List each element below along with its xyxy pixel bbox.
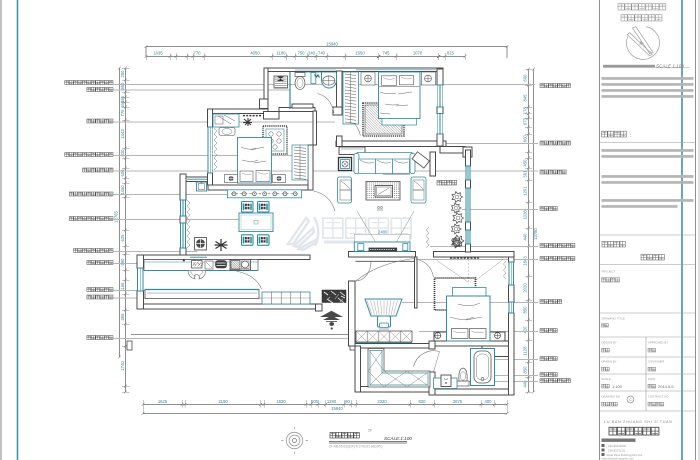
svg-text:2F-AB.05.03(S2F):4:1700.01-abc: 2F-AB.05.03(S2F):4:1700.01-abcdPQ <box>329 445 383 449</box>
svg-text:PROJECT: PROJECT <box>602 270 616 274</box>
svg-text:750: 750 <box>298 50 306 55</box>
svg-text:2014.6.6: 2014.6.6 <box>658 384 674 389</box>
svg-text:440: 440 <box>523 380 528 388</box>
svg-text:DRAWING TITLE: DRAWING TITLE <box>602 317 625 321</box>
svg-text:2480: 2480 <box>378 229 388 234</box>
svg-text:SCALE: SCALE <box>602 377 611 381</box>
svg-text:165: 165 <box>120 100 125 108</box>
svg-text:1100: 1100 <box>276 50 286 55</box>
svg-text:845: 845 <box>523 94 528 102</box>
svg-text:2F: 2F <box>368 429 372 433</box>
svg-text:2020: 2020 <box>523 283 528 293</box>
svg-text:1070: 1070 <box>413 50 423 55</box>
svg-text:2675: 2675 <box>453 399 463 404</box>
svg-text:13780: 13780 <box>533 228 538 240</box>
svg-text:105: 105 <box>311 399 319 404</box>
svg-text:820: 820 <box>419 399 427 404</box>
svg-text:850: 850 <box>523 306 528 314</box>
svg-text:SCALE:1:100: SCALE:1:100 <box>384 436 412 441</box>
svg-text:www.lubanzhuangshi.com: www.lubanzhuangshi.com <box>602 457 635 460</box>
svg-text:1:100: 1:100 <box>612 384 623 389</box>
svg-text:1843: 1843 <box>523 256 528 266</box>
svg-text:740: 740 <box>318 50 326 55</box>
svg-text:12765: 12765 <box>114 211 119 223</box>
svg-text:400: 400 <box>485 399 493 404</box>
svg-text:775: 775 <box>120 109 125 117</box>
svg-text:770: 770 <box>194 50 202 55</box>
svg-text:1635: 1635 <box>153 50 163 55</box>
svg-text:DATE: DATE <box>648 377 655 381</box>
svg-text:15940: 15940 <box>326 41 338 46</box>
svg-text:1930: 1930 <box>276 399 286 404</box>
svg-text:15940: 15940 <box>331 406 343 411</box>
svg-text:2190: 2190 <box>218 399 228 404</box>
svg-text:1625: 1625 <box>158 399 168 404</box>
svg-text:745: 745 <box>383 50 391 55</box>
svg-text:4050: 4050 <box>250 50 260 55</box>
svg-text:: 029-85231111: : 029-85231111 <box>607 449 626 453</box>
svg-text:420: 420 <box>523 326 528 334</box>
svg-text:178: 178 <box>523 107 528 115</box>
svg-text:815: 815 <box>447 50 455 55</box>
svg-text:DESIGN BY: DESIGN BY <box>602 341 617 345</box>
svg-text:450: 450 <box>523 159 528 167</box>
svg-text:DRAWING NO: DRAWING NO <box>602 395 621 399</box>
svg-text:850: 850 <box>120 82 125 90</box>
svg-text:673: 673 <box>523 117 528 125</box>
svg-text:CONTRACT NO: CONTRACT NO <box>648 395 669 399</box>
svg-text:660: 660 <box>523 134 528 142</box>
svg-text:600: 600 <box>120 169 125 177</box>
svg-text:1128: 1128 <box>523 346 528 356</box>
svg-text:1155: 1155 <box>120 282 125 292</box>
svg-text:625: 625 <box>120 234 125 242</box>
svg-text:600: 600 <box>523 74 528 82</box>
svg-text:590: 590 <box>120 258 125 266</box>
svg-text:250: 250 <box>120 70 125 78</box>
svg-text:850: 850 <box>523 366 528 374</box>
svg-text:1550: 1550 <box>355 50 365 55</box>
svg-text:DRAWN BY: DRAWN BY <box>602 360 617 364</box>
svg-text:1740: 1740 <box>120 361 125 371</box>
svg-text:365: 365 <box>120 313 125 321</box>
svg-text:1028: 1028 <box>523 210 528 220</box>
svg-text:1280: 1280 <box>327 399 337 404</box>
svg-text::: : <box>630 133 631 139</box>
svg-text:APPROVED BY: APPROVED BY <box>648 341 668 345</box>
svg-text:440: 440 <box>523 233 528 241</box>
svg-text:CONSUMER: CONSUMER <box>648 360 664 364</box>
svg-text:240: 240 <box>308 50 316 55</box>
svg-text:: 029-85236666: : 029-85236666 <box>607 444 627 448</box>
svg-text:LU BAN ZHUANG SHI JI TUAN: LU BAN ZHUANG SHI JI TUAN <box>604 420 673 424</box>
svg-text:2320: 2320 <box>377 399 387 404</box>
svg-text:60: 60 <box>345 399 350 404</box>
svg-text:1443: 1443 <box>120 129 125 139</box>
svg-text:1450: 1450 <box>120 185 125 195</box>
svg-text:1201: 1201 <box>523 186 528 196</box>
